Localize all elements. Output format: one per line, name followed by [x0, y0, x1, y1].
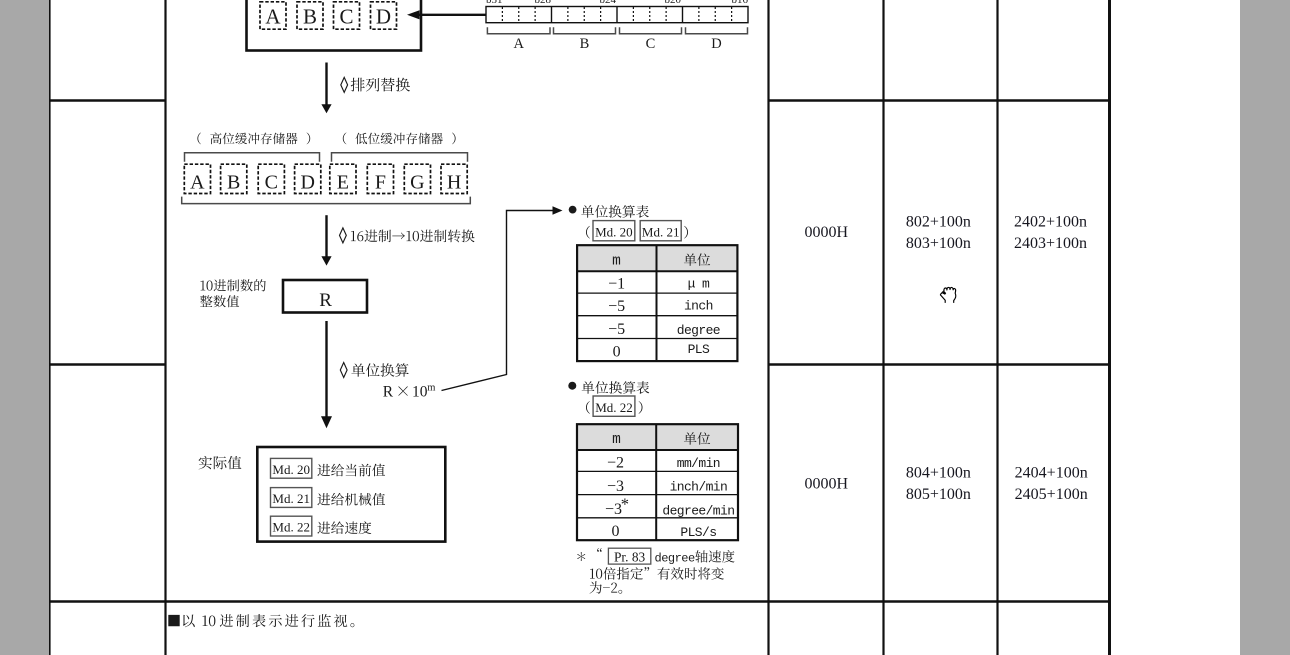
svg-text:A: A: [513, 36, 524, 52]
svg-text:Md. 22: Md. 22: [595, 400, 633, 415]
svg-text:10: 10: [412, 384, 428, 401]
svg-text:0000H: 0000H: [805, 224, 849, 241]
svg-text:2403+100n: 2403+100n: [1014, 235, 1087, 252]
svg-text:R: R: [383, 384, 394, 401]
svg-text:−3: −3: [607, 478, 624, 495]
svg-text:C: C: [339, 4, 353, 28]
svg-text:G: G: [410, 172, 424, 194]
svg-text:inch/min: inch/min: [670, 480, 728, 495]
svg-text:m: m: [612, 432, 621, 448]
svg-text:degree: degree: [677, 323, 720, 338]
svg-text:m: m: [427, 383, 435, 394]
svg-text:μ m: μ m: [688, 277, 710, 292]
svg-text:802+100n: 802+100n: [906, 214, 971, 231]
svg-text:804+100n: 804+100n: [906, 465, 971, 482]
svg-text:0: 0: [613, 343, 621, 360]
svg-text:0: 0: [612, 523, 620, 540]
svg-text:Md. 21: Md. 21: [642, 224, 680, 239]
svg-text:C: C: [646, 36, 656, 52]
svg-text:b31: b31: [486, 0, 503, 6]
svg-text:D: D: [711, 36, 721, 52]
svg-text:E: E: [337, 172, 349, 194]
svg-text:degree: degree: [655, 551, 696, 565]
svg-text:Md. 21: Md. 21: [272, 491, 310, 506]
svg-text:D: D: [300, 172, 314, 194]
svg-text:B: B: [227, 172, 240, 194]
svg-text:PLS/s: PLS/s: [680, 525, 716, 540]
svg-text:b16: b16: [732, 0, 749, 6]
svg-text:Pr. 83: Pr. 83: [614, 549, 646, 564]
svg-text:degree/min: degree/min: [662, 503, 734, 518]
svg-text:−3: −3: [605, 501, 622, 518]
svg-text:*: *: [621, 495, 629, 514]
svg-text:PLS: PLS: [688, 342, 710, 357]
svg-text:mm/min: mm/min: [677, 456, 720, 471]
svg-text:0000H: 0000H: [805, 475, 849, 492]
svg-text:D: D: [376, 4, 391, 28]
svg-text:b20: b20: [665, 0, 682, 6]
svg-text:805+100n: 805+100n: [906, 486, 971, 503]
svg-text:H: H: [447, 172, 461, 194]
svg-text:A: A: [190, 172, 205, 194]
svg-text:B: B: [303, 4, 317, 28]
svg-text:Md. 22: Md. 22: [272, 520, 310, 535]
svg-text:2404+100n: 2404+100n: [1015, 465, 1088, 482]
svg-text:Md. 20: Md. 20: [595, 224, 633, 239]
svg-text:2405+100n: 2405+100n: [1015, 486, 1088, 503]
svg-text:A: A: [265, 4, 281, 28]
svg-text:b28: b28: [535, 0, 552, 6]
svg-text:b24: b24: [600, 0, 617, 6]
svg-text:803+100n: 803+100n: [906, 235, 971, 252]
svg-text:C: C: [265, 172, 278, 194]
svg-text:m: m: [612, 253, 621, 269]
svg-text:−2: −2: [607, 455, 624, 472]
svg-text:R: R: [319, 290, 332, 311]
svg-text:inch: inch: [684, 298, 713, 313]
svg-text:−1: −1: [608, 276, 625, 293]
svg-text:−5: −5: [608, 321, 625, 338]
svg-text:2402+100n: 2402+100n: [1014, 214, 1087, 231]
svg-text:Md. 20: Md. 20: [272, 462, 310, 477]
svg-text:−5: −5: [608, 298, 625, 315]
svg-text:F: F: [375, 172, 386, 194]
svg-text:B: B: [580, 36, 590, 52]
